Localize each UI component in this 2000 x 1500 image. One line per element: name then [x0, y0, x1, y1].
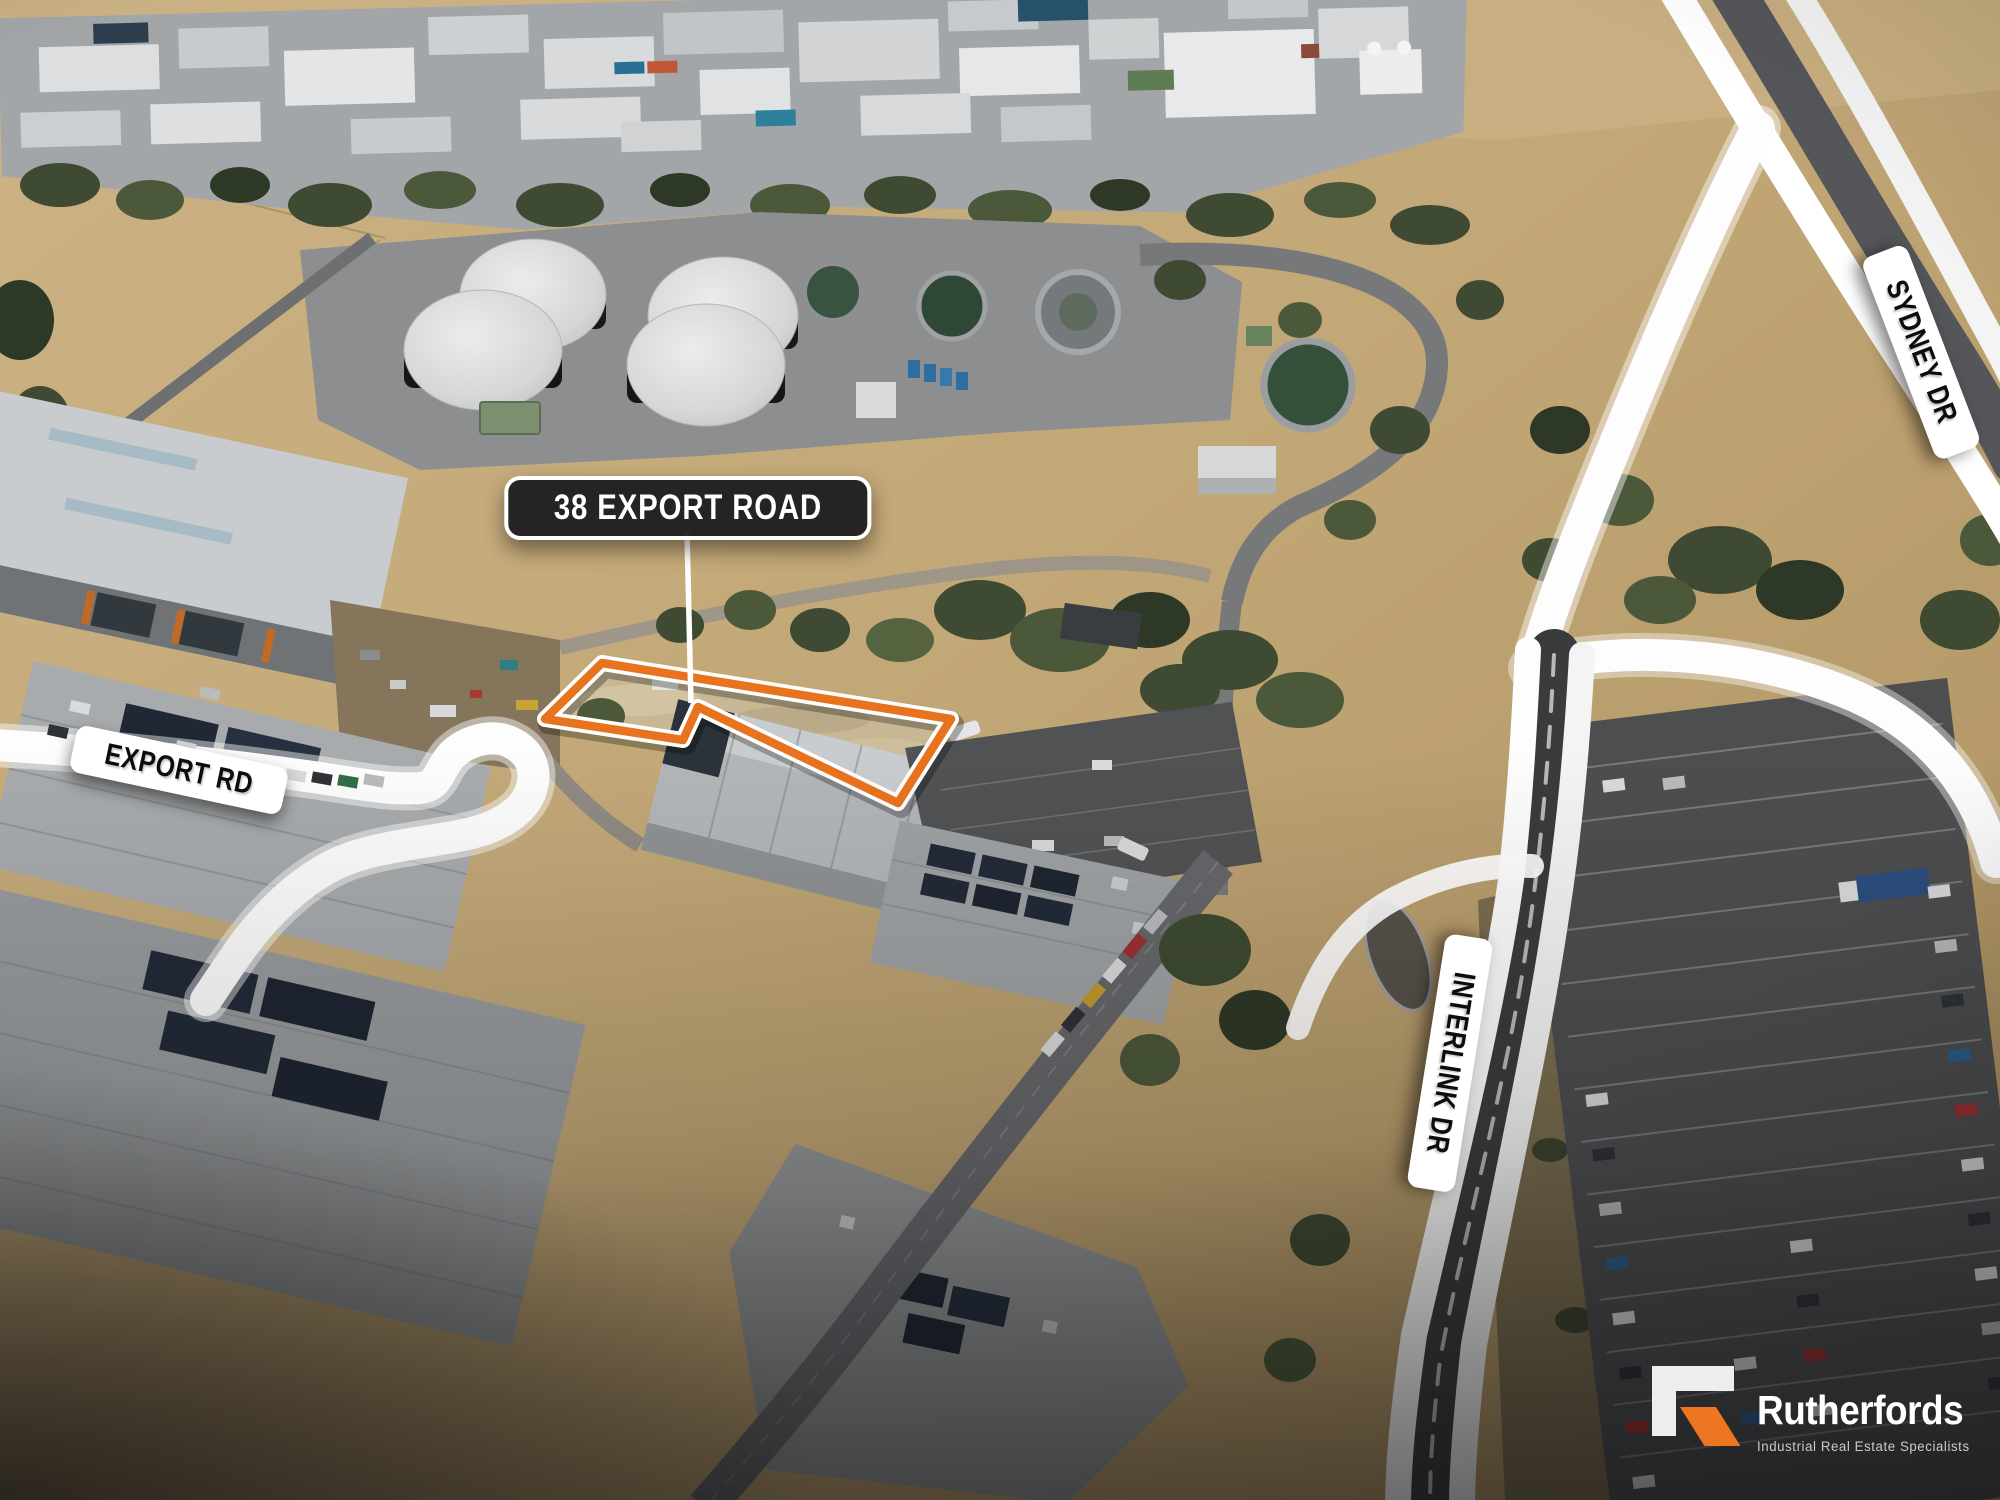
property-callout: 38 EXPORT ROAD: [504, 476, 871, 540]
rutherfords-r-mark-icon: [1652, 1366, 1740, 1446]
logo-brand-text: Rutherfords: [1757, 1390, 1963, 1431]
logo-tagline-text: Industrial Real Estate Specialists: [1757, 1439, 1982, 1454]
aerial-property-photo: 38 EXPORT ROAD EXPORT RD SYDNEY DR INTER…: [0, 0, 2000, 1500]
temple-building: [1359, 49, 1422, 95]
aerial-scene: [0, 0, 2000, 1500]
property-callout-label: 38 EXPORT ROAD: [554, 488, 822, 528]
rutherfords-logo: Rutherfords Industrial Real Estate Speci…: [1652, 1366, 1986, 1454]
